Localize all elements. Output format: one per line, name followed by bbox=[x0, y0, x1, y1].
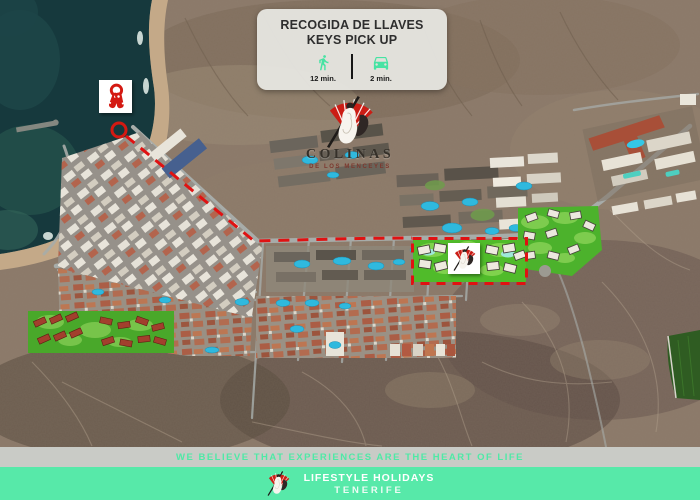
walk-time-label: 12 min. bbox=[310, 74, 336, 83]
tagline-band: WE BELIEVE THAT EXPERIENCES ARE THE HEAR… bbox=[0, 447, 700, 467]
footer-brand-line1: LIFESTYLE HOLIDAYS bbox=[304, 472, 435, 484]
apartment-complex-center bbox=[266, 246, 414, 292]
footer-brand-text: LIFESTYLE HOLIDAYS TENERIFE bbox=[304, 472, 435, 496]
card-title-es: RECOGIDA DE LLAVES bbox=[257, 18, 447, 33]
walking-time: 12 min. bbox=[295, 53, 351, 83]
resort-name: COLINAS bbox=[292, 147, 408, 163]
lifestyle-holidays-logo-icon bbox=[266, 470, 291, 497]
car-icon bbox=[369, 53, 393, 72]
keys-pickup-box bbox=[99, 80, 132, 113]
resort-subtitle: DE LOS MENCEYES bbox=[292, 164, 408, 170]
colinas-plot-logo-box bbox=[448, 243, 480, 274]
resort-logo: COLINAS DE LOS MENCEYES bbox=[292, 94, 408, 170]
transit-times-row: 12 min. 2 min. bbox=[257, 53, 447, 83]
footer-brand-line2: TENERIFE bbox=[304, 485, 435, 496]
driving-time: 2 min. bbox=[353, 53, 409, 83]
green-plot-bottom-left bbox=[28, 311, 174, 353]
walking-person-icon bbox=[315, 53, 332, 72]
footer-brand-band: LIFESTYLE HOLIDAYS TENERIFE bbox=[0, 467, 700, 500]
colinas-dancer-fan-icon bbox=[323, 94, 377, 150]
keys-pickup-info-card: RECOGIDA DE LLAVES KEYS PICK UP 12 min. … bbox=[257, 9, 447, 90]
tagline-text: WE BELIEVE THAT EXPERIENCES ARE THE HEAR… bbox=[176, 452, 524, 463]
card-title-en: KEYS PICK UP bbox=[257, 33, 447, 48]
drive-time-label: 2 min. bbox=[370, 74, 392, 83]
